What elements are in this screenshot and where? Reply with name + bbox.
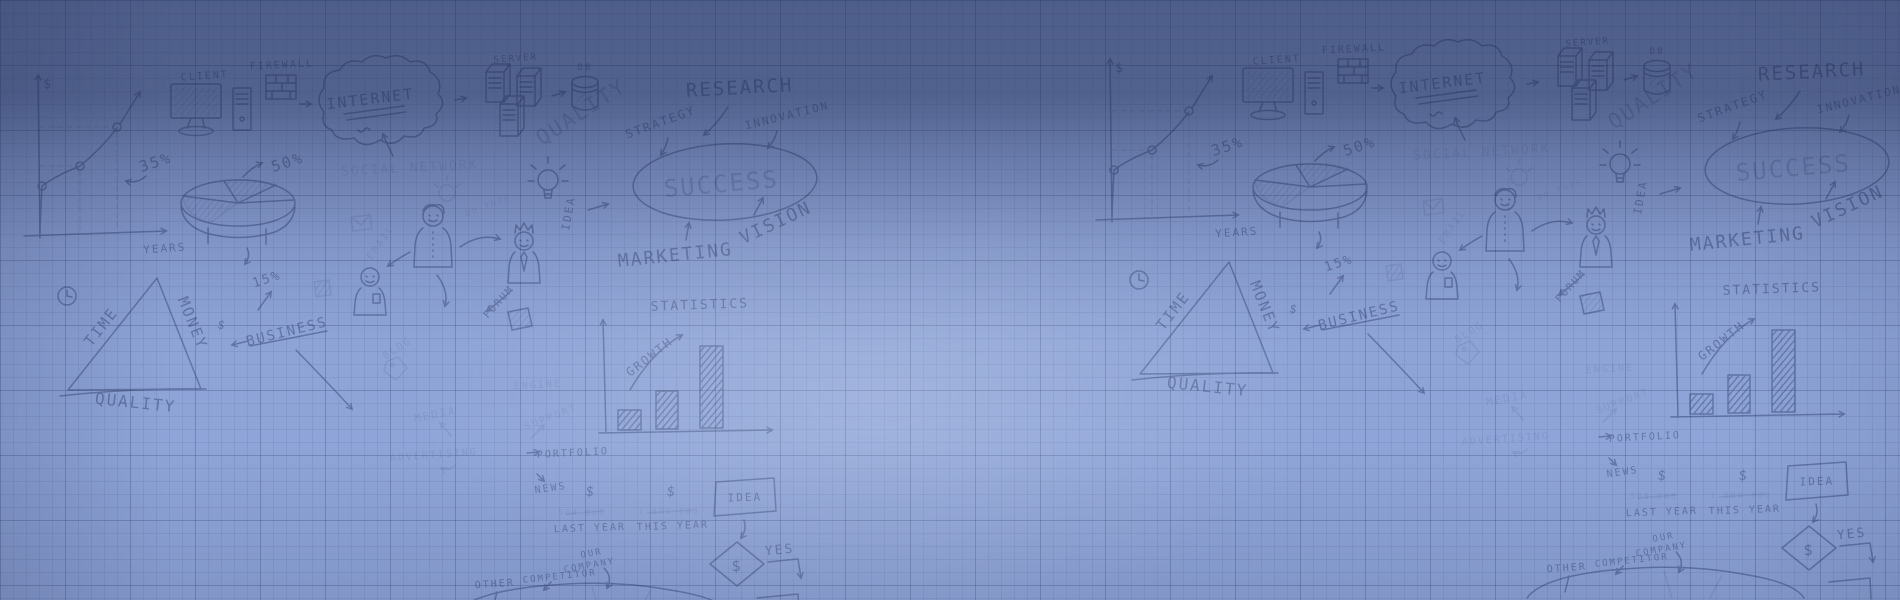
business-doodle-banner: $ YEARS 35% 50%	[0, 0, 1900, 600]
doodle-tile-right	[1096, 36, 1900, 599]
doodle-layer: $ YEARS 35% 50%	[0, 0, 1900, 600]
doodle-tile-left	[24, 52, 831, 600]
